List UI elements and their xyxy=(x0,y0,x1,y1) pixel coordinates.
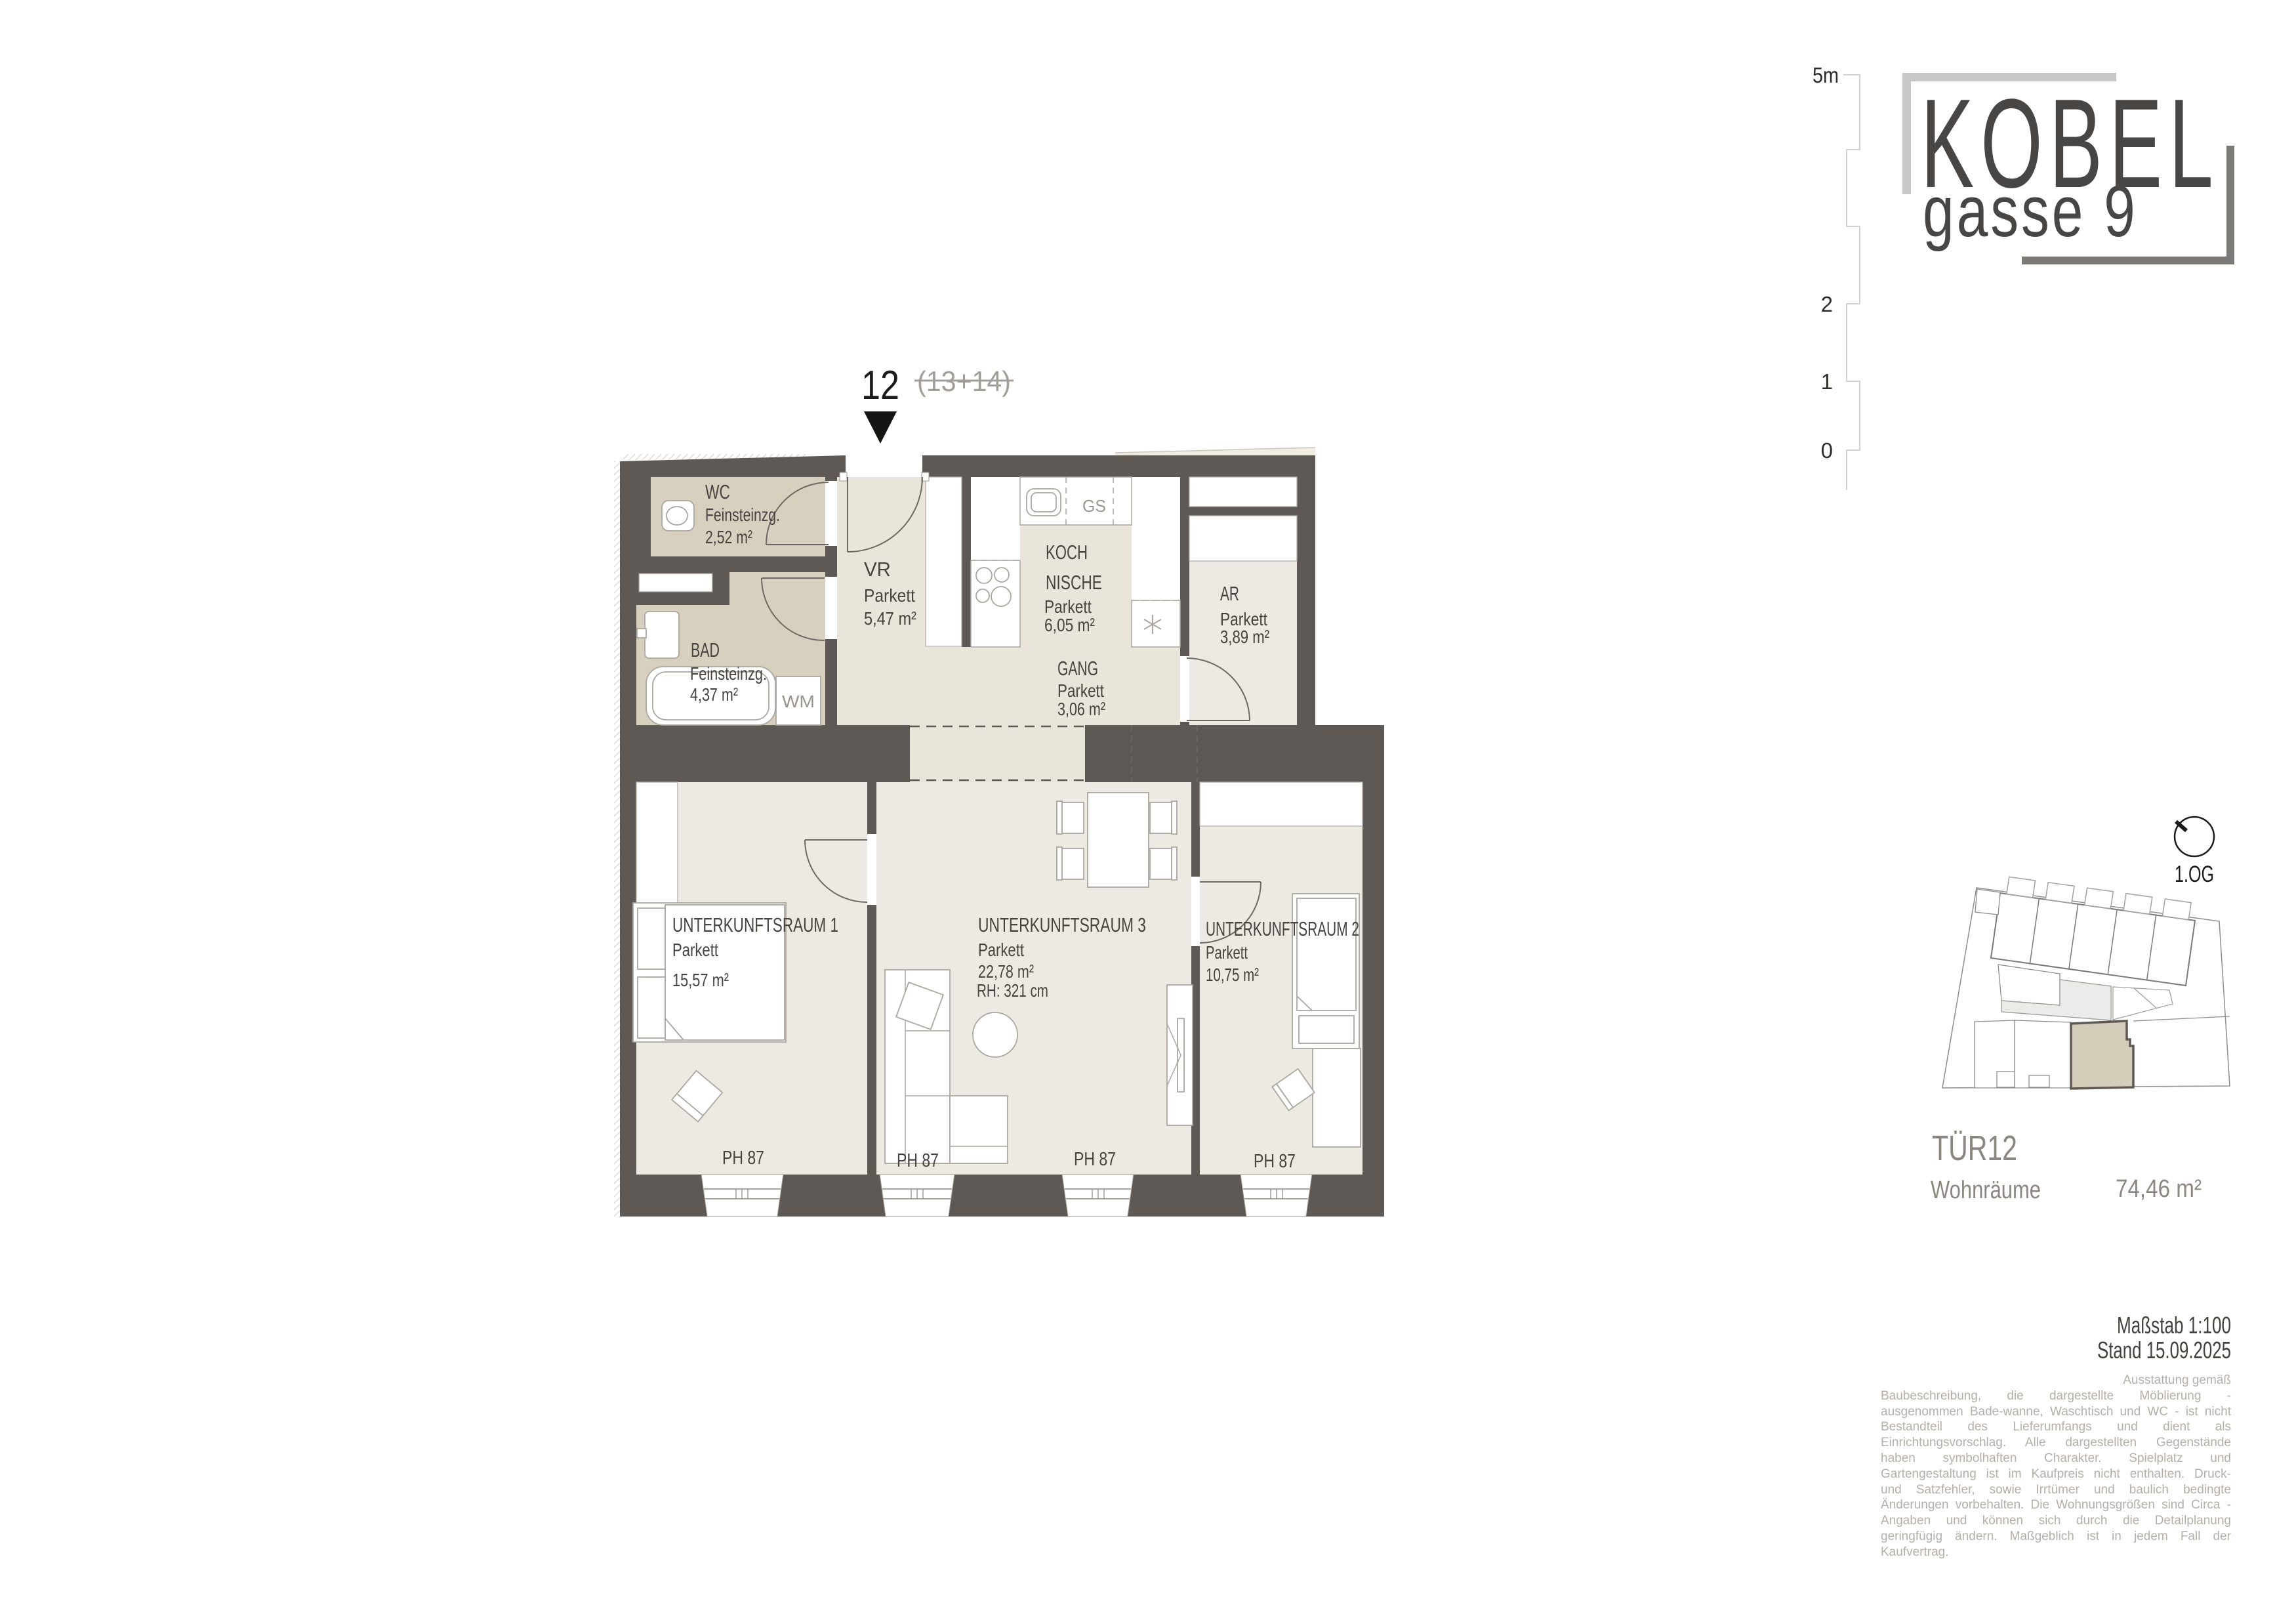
svg-text:WC: WC xyxy=(705,480,730,503)
svg-text:10,75 m²: 10,75 m² xyxy=(1206,965,1259,985)
svg-text:Parkett: Parkett xyxy=(864,585,915,606)
svg-text:NISCHE: NISCHE xyxy=(1046,571,1102,594)
svg-text:Parkett: Parkett xyxy=(1044,596,1092,617)
svg-text:12: 12 xyxy=(861,363,899,408)
svg-text:2,52 m²: 2,52 m² xyxy=(705,527,752,547)
svg-text:1: 1 xyxy=(1821,369,1833,394)
svg-text:Wohnräume: Wohnräume xyxy=(1931,1176,2041,1204)
svg-text:AR: AR xyxy=(1220,582,1239,605)
svg-text:KOCH: KOCH xyxy=(1046,541,1088,564)
svg-text:Feinsteinzg.: Feinsteinzg. xyxy=(705,505,780,525)
svg-text:Parkett: Parkett xyxy=(1206,942,1248,963)
svg-text:UNTERKUNFTSRAUM 3: UNTERKUNFTSRAUM 3 xyxy=(978,913,1146,936)
svg-text:74,46 m²: 74,46 m² xyxy=(2116,1175,2202,1203)
svg-text:PH 87: PH 87 xyxy=(722,1148,764,1169)
svg-text:Feinsteinzg.: Feinsteinzg. xyxy=(690,663,767,684)
svg-text:Parkett: Parkett xyxy=(978,940,1024,960)
svg-text:22,78 m²: 22,78 m² xyxy=(978,961,1034,982)
svg-text:3,89 m²: 3,89 m² xyxy=(1220,627,1269,647)
svg-text:RH: 321 cm: RH: 321 cm xyxy=(977,980,1048,1001)
svg-text:1.OG: 1.OG xyxy=(2175,862,2214,887)
svg-text:WM: WM xyxy=(782,692,815,711)
svg-text:Maßstab 1:100: Maßstab 1:100 xyxy=(2117,1312,2231,1339)
svg-text:PH 87: PH 87 xyxy=(1254,1151,1296,1172)
svg-text:4,37 m²: 4,37 m² xyxy=(690,684,738,705)
svg-text:VR: VR xyxy=(864,558,891,581)
svg-text:2: 2 xyxy=(1821,292,1833,316)
svg-text:UNTERKUNFTSRAUM 2: UNTERKUNFTSRAUM 2 xyxy=(1206,917,1359,940)
svg-text:0: 0 xyxy=(1821,438,1833,463)
svg-text:15,57 m²: 15,57 m² xyxy=(672,970,729,990)
svg-text:3,06 m²: 3,06 m² xyxy=(1057,699,1105,719)
svg-text:GANG: GANG xyxy=(1057,657,1098,680)
svg-text:TÜR12: TÜR12 xyxy=(1932,1129,2017,1168)
svg-text:5m: 5m xyxy=(1813,63,1839,87)
svg-text:BAD: BAD xyxy=(691,638,720,661)
svg-text:5,47 m²: 5,47 m² xyxy=(864,608,916,629)
svg-text:6,05 m²: 6,05 m² xyxy=(1044,615,1095,635)
svg-text:Stand 15.09.2025: Stand 15.09.2025 xyxy=(2097,1337,2231,1364)
svg-text:PH 87: PH 87 xyxy=(897,1150,939,1171)
svg-text:Parkett: Parkett xyxy=(1057,680,1104,701)
svg-text:UNTERKUNFTSRAUM 1: UNTERKUNFTSRAUM 1 xyxy=(672,913,838,936)
svg-text:GS: GS xyxy=(1082,496,1106,516)
svg-text:gasse 9: gasse 9 xyxy=(1923,171,2138,252)
svg-text:Parkett: Parkett xyxy=(672,940,718,960)
svg-text:PH 87: PH 87 xyxy=(1074,1149,1116,1170)
